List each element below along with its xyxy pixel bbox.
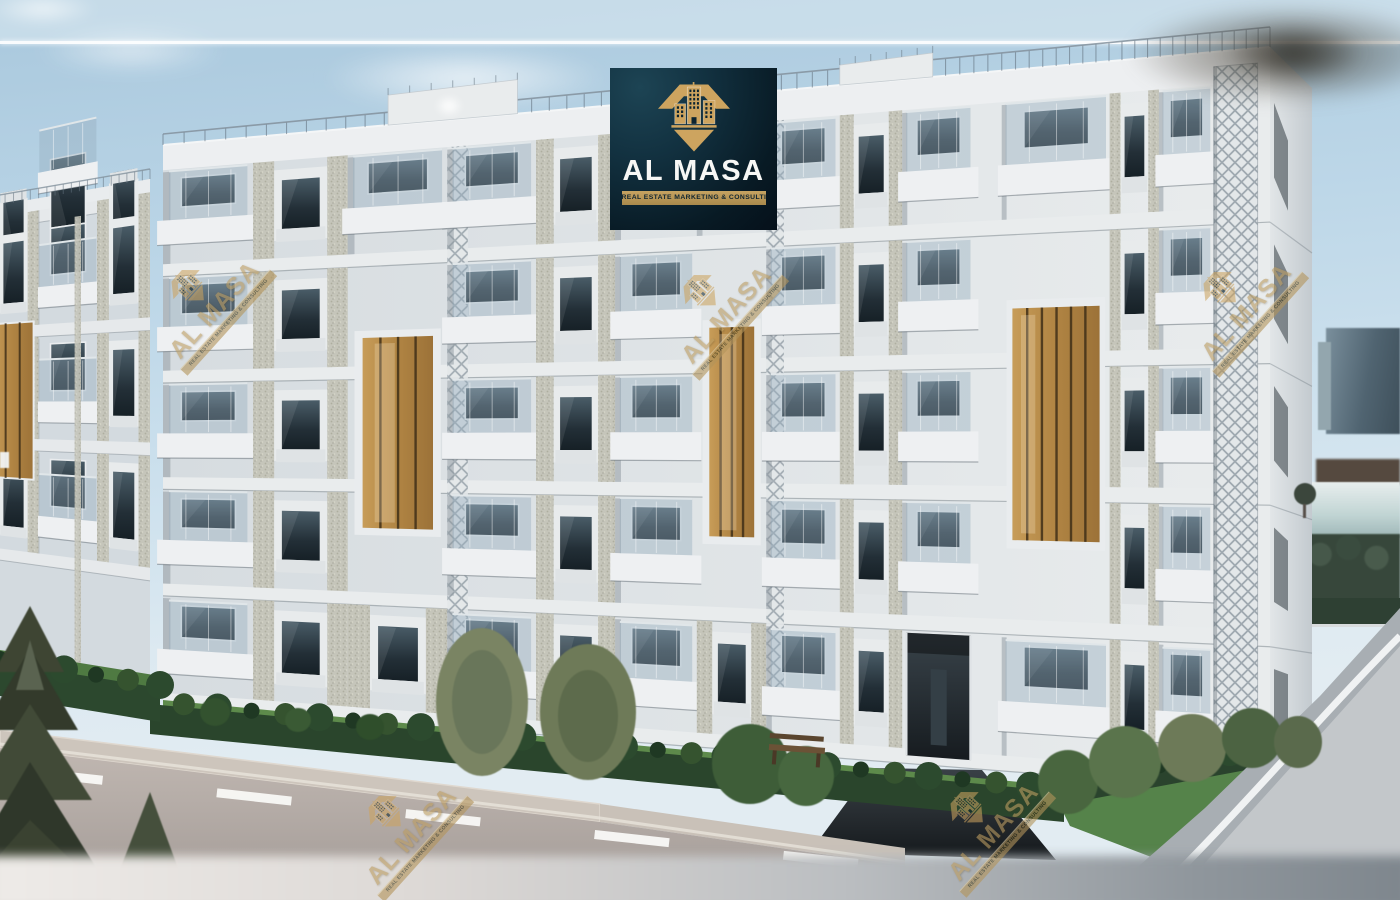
roof-glare bbox=[434, 94, 464, 118]
tree-blur-top-right bbox=[1224, 22, 1364, 84]
left-building bbox=[0, 118, 150, 707]
logo-brand-text: AL MASA bbox=[622, 157, 764, 186]
logo-overlay: AL MASA REAL ESTATE MARKETING & CONSULTI… bbox=[610, 68, 777, 230]
bottom-blur-band bbox=[0, 856, 1400, 900]
scene: AL MASA REAL ESTATE MARKETING & CONSULTI… bbox=[0, 0, 1400, 900]
edge-artifact bbox=[0, 452, 9, 468]
logo-tagline-bar: REAL ESTATE MARKETING & CONSULTING bbox=[622, 191, 766, 205]
diamond-buildings-icon bbox=[652, 77, 736, 154]
